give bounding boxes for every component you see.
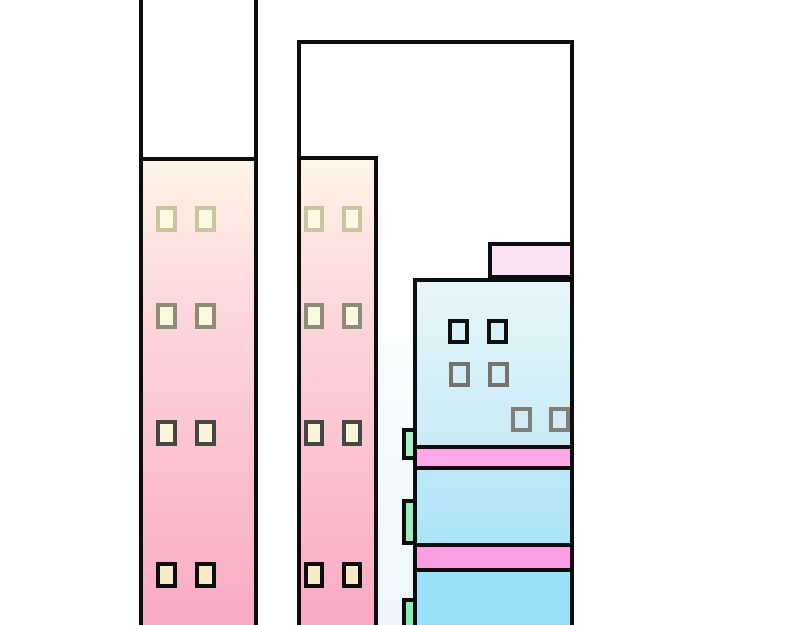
blue-tower-stripe-1 [413, 449, 574, 470]
window [487, 319, 508, 344]
window [304, 206, 324, 232]
city-illustration-canvas [0, 0, 800, 625]
blue-tower-mid-section [413, 470, 574, 543]
window [342, 206, 362, 232]
window [342, 420, 362, 446]
window [156, 303, 177, 329]
window [304, 562, 324, 588]
window [342, 303, 362, 329]
window [549, 407, 570, 432]
white-tower-roof-annex [488, 242, 574, 279]
window [195, 303, 216, 329]
window [342, 562, 362, 588]
window [304, 303, 324, 329]
window [195, 420, 216, 446]
window [448, 319, 469, 344]
window [511, 407, 532, 432]
window [195, 562, 216, 588]
window [304, 420, 324, 446]
window [156, 420, 177, 446]
blue-tower-bottom-section [413, 572, 574, 625]
window [195, 206, 216, 232]
window [449, 362, 470, 387]
window [156, 562, 177, 588]
blue-tower-stripe-2 [413, 543, 574, 572]
window [488, 362, 509, 387]
window [156, 206, 177, 232]
